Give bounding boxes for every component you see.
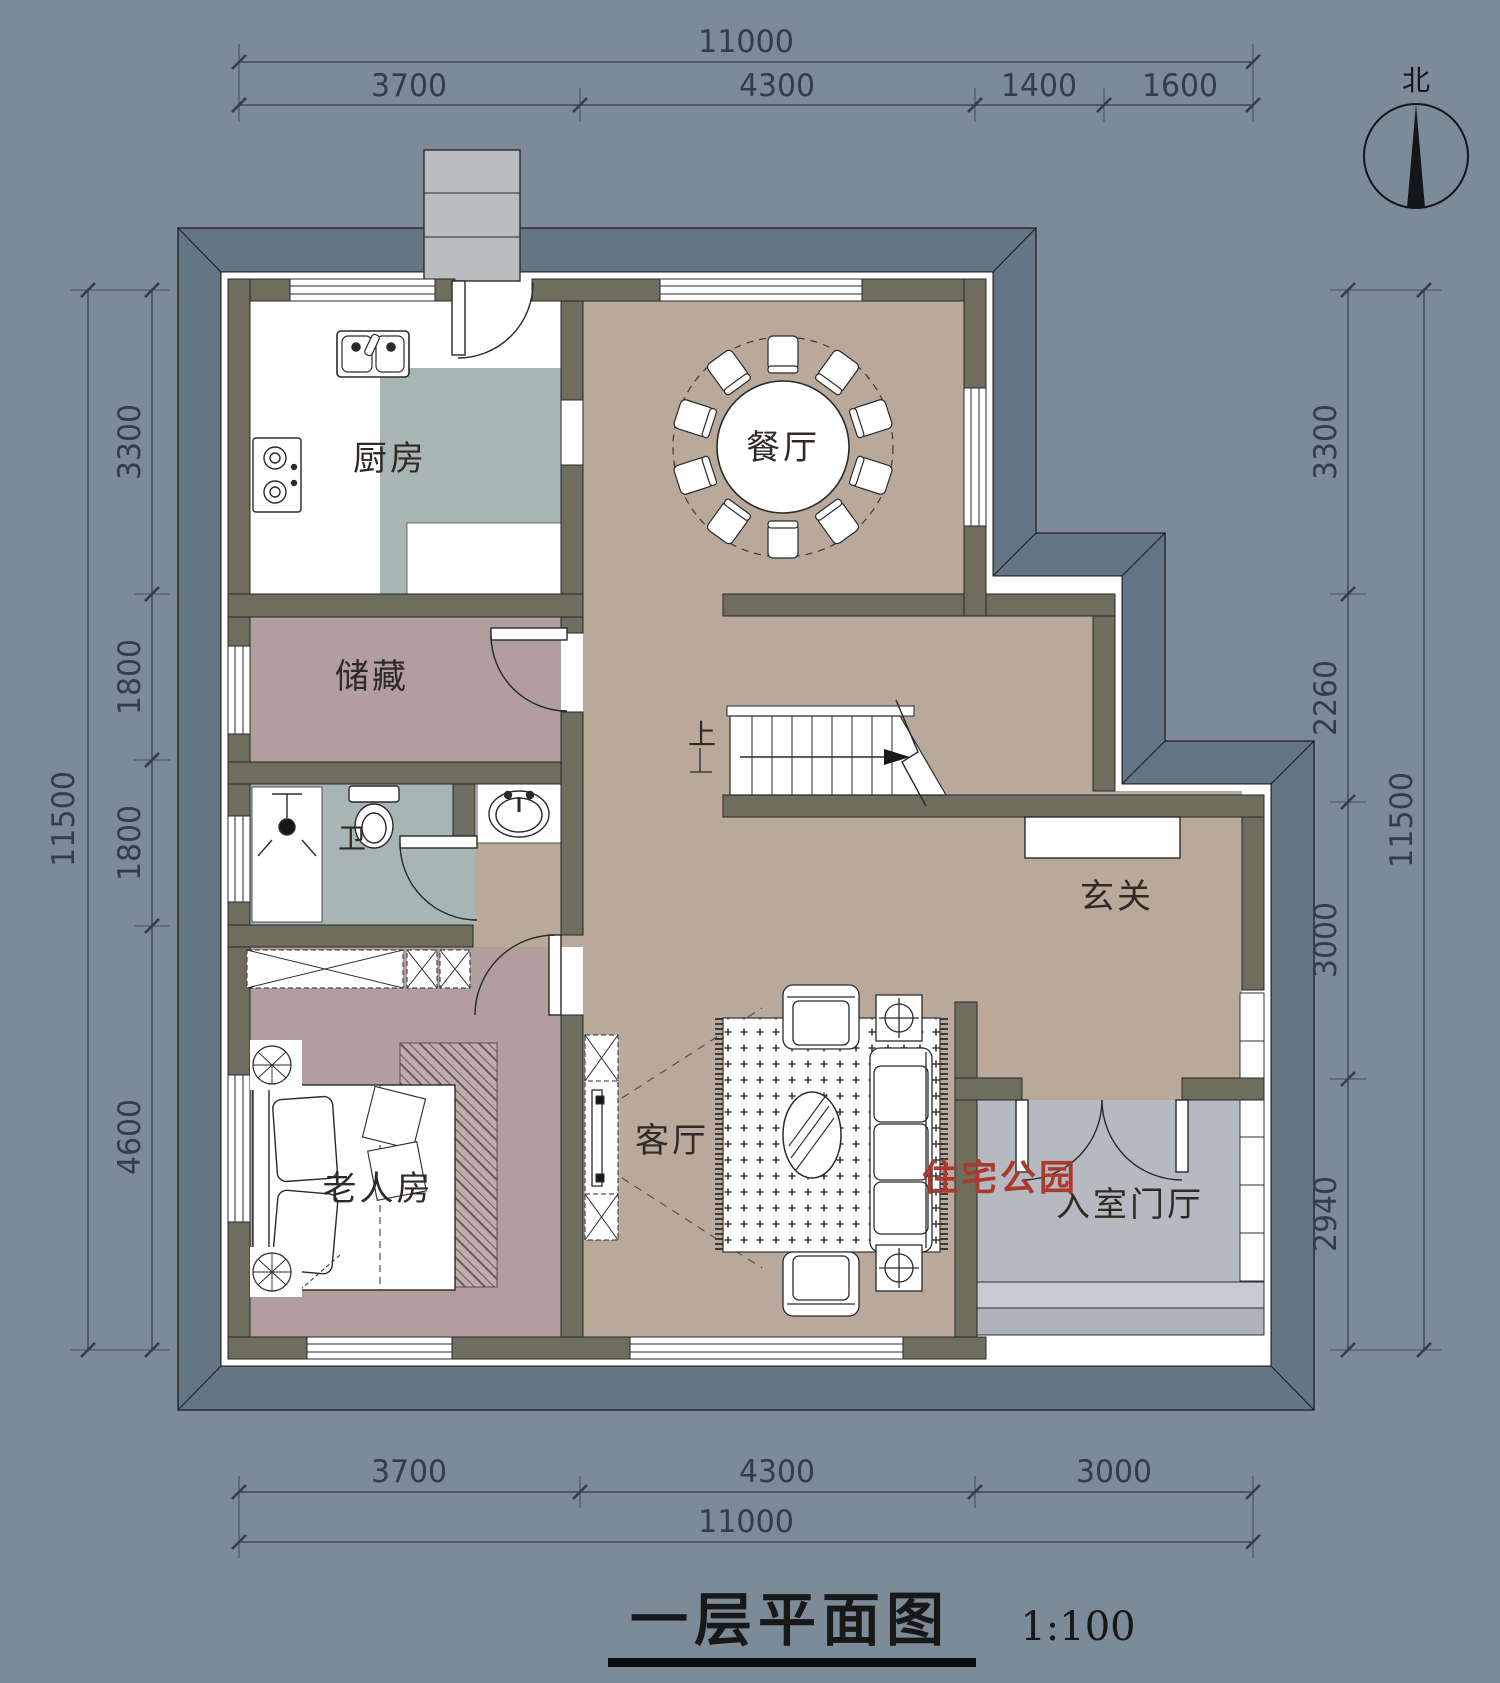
entry-threshold (1022, 1078, 1182, 1100)
dim-top-total: 11000 (698, 24, 794, 60)
window-dining-top (660, 279, 862, 301)
kitchen-lower-counter (407, 523, 561, 594)
title-underline (608, 1658, 976, 1667)
window-living-bottom (630, 1337, 903, 1359)
label-hallway: 玄关 (1080, 878, 1154, 916)
wardrobe (247, 950, 470, 988)
kitchen-pass-opening (561, 400, 583, 465)
label-entry-foyer: 入室门厅 (1056, 1186, 1204, 1224)
dim-right-3: 3000 (1308, 902, 1344, 978)
kitchen-stove (253, 438, 301, 512)
chimney (424, 150, 520, 281)
label-living: 客厅 (635, 1122, 709, 1160)
sofa (870, 1048, 932, 1252)
dim-right-4: 2940 (1308, 1176, 1344, 1252)
dim-right-2: 2260 (1308, 660, 1344, 736)
dim-left-3: 1800 (112, 805, 148, 881)
armchair-top (783, 985, 859, 1049)
label-bathroom: 卫 (338, 824, 366, 855)
dim-right-1: 3300 (1308, 404, 1344, 480)
drawing-scale: 1:100 (1020, 1604, 1135, 1650)
shoe-cabinet (1025, 817, 1180, 858)
dim-top-1: 3700 (371, 68, 447, 104)
dim-top-3: 1400 (1001, 68, 1077, 104)
dining-chair (768, 521, 798, 558)
label-dining: 餐厅 (746, 429, 820, 467)
window-dining-right (964, 388, 986, 526)
label-elderly-bedroom: 老人房 (323, 1170, 434, 1208)
window-bedroom-bottom (307, 1337, 452, 1359)
window-storage-left (228, 646, 250, 734)
floor-plan-svg: 厨房 餐厅 储藏 卫 玄关 老人房 客厅 入室门厅 上 住宅公园 (0, 0, 1500, 1683)
armchair-bottom (783, 1252, 859, 1316)
dim-right-total: 11500 (1384, 772, 1420, 868)
basin (489, 791, 549, 837)
dim-bottom-3: 3000 (1076, 1454, 1152, 1490)
dim-bottom-total: 11000 (698, 1504, 794, 1540)
dim-bottom-1: 3700 (371, 1454, 447, 1490)
dim-top-2: 4300 (739, 68, 815, 104)
window-bath-left (228, 816, 250, 902)
side-table-bottom (876, 1245, 922, 1291)
label-stairs-up: 上 (688, 720, 716, 751)
label-storage: 储藏 (335, 658, 409, 696)
window-kitchen-top (290, 279, 435, 301)
kitchen-sink (337, 331, 409, 377)
watermark-text: 住宅公园 (922, 1157, 1078, 1198)
drawing-title: 一层平面图 (630, 1588, 950, 1653)
dim-bottom-2: 4300 (739, 1454, 815, 1490)
label-kitchen: 厨房 (353, 440, 427, 478)
side-table-top (876, 995, 922, 1041)
dim-left-4: 4600 (112, 1099, 148, 1175)
compass-north-label: 北 (1402, 66, 1430, 97)
dim-left-1: 3300 (112, 404, 148, 480)
dim-left-total: 11500 (46, 771, 82, 867)
coffee-table (783, 1092, 841, 1178)
dim-left-2: 1800 (112, 639, 148, 715)
dining-chair (768, 336, 798, 373)
floor-plan-page: 厨房 餐厅 储藏 卫 玄关 老人房 客厅 入室门厅 上 住宅公园 (0, 0, 1500, 1683)
window-bedroom-left (228, 1075, 250, 1222)
dim-top-4: 1600 (1142, 68, 1218, 104)
